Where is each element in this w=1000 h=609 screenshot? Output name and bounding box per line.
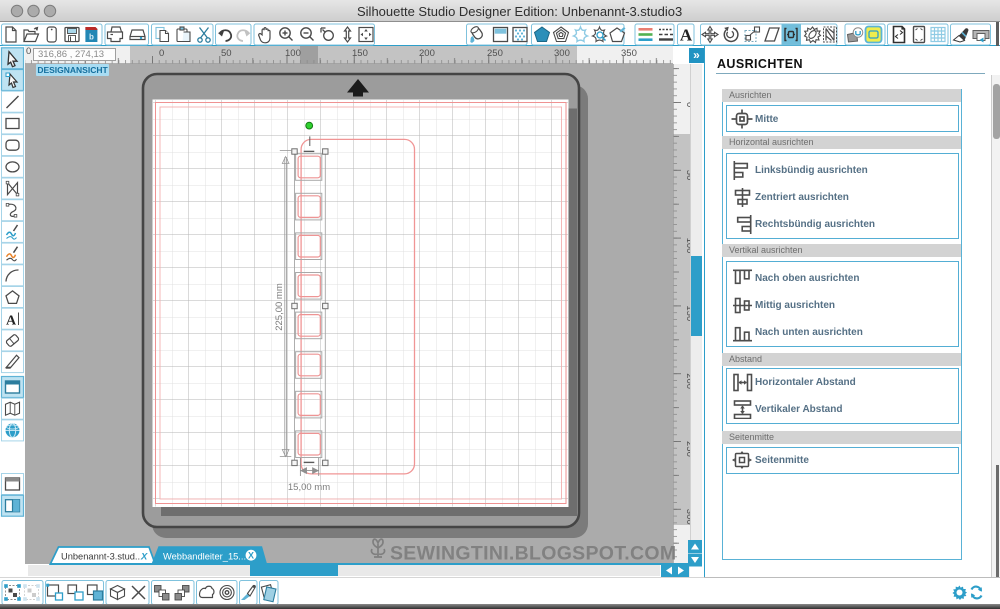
- svg-text:225,00 mm: 225,00 mm: [274, 283, 285, 331]
- svg-text:250: 250: [487, 48, 503, 59]
- svg-text:A: A: [6, 313, 17, 328]
- svg-text:Webbandleiter_15...: Webbandleiter_15...: [163, 552, 246, 562]
- svg-text:300: 300: [554, 48, 570, 59]
- svg-text:X: X: [248, 551, 254, 561]
- svg-text:X: X: [140, 551, 148, 562]
- svg-text:b: b: [89, 33, 94, 42]
- svg-text:A: A: [680, 26, 693, 45]
- svg-text:200: 200: [419, 48, 435, 59]
- svg-text:150: 150: [352, 48, 368, 59]
- svg-text:350: 350: [621, 48, 637, 59]
- svg-text:SEWINGTINI.BLOGSPOT.COM: SEWINGTINI.BLOGSPOT.COM: [390, 543, 676, 565]
- svg-text:100: 100: [285, 48, 301, 59]
- svg-text:Unbenannt-3.stud...: Unbenannt-3.stud...: [61, 552, 143, 562]
- svg-text:50: 50: [221, 48, 232, 59]
- svg-text:0: 0: [159, 48, 164, 59]
- svg-text:15,00 mm: 15,00 mm: [288, 482, 330, 493]
